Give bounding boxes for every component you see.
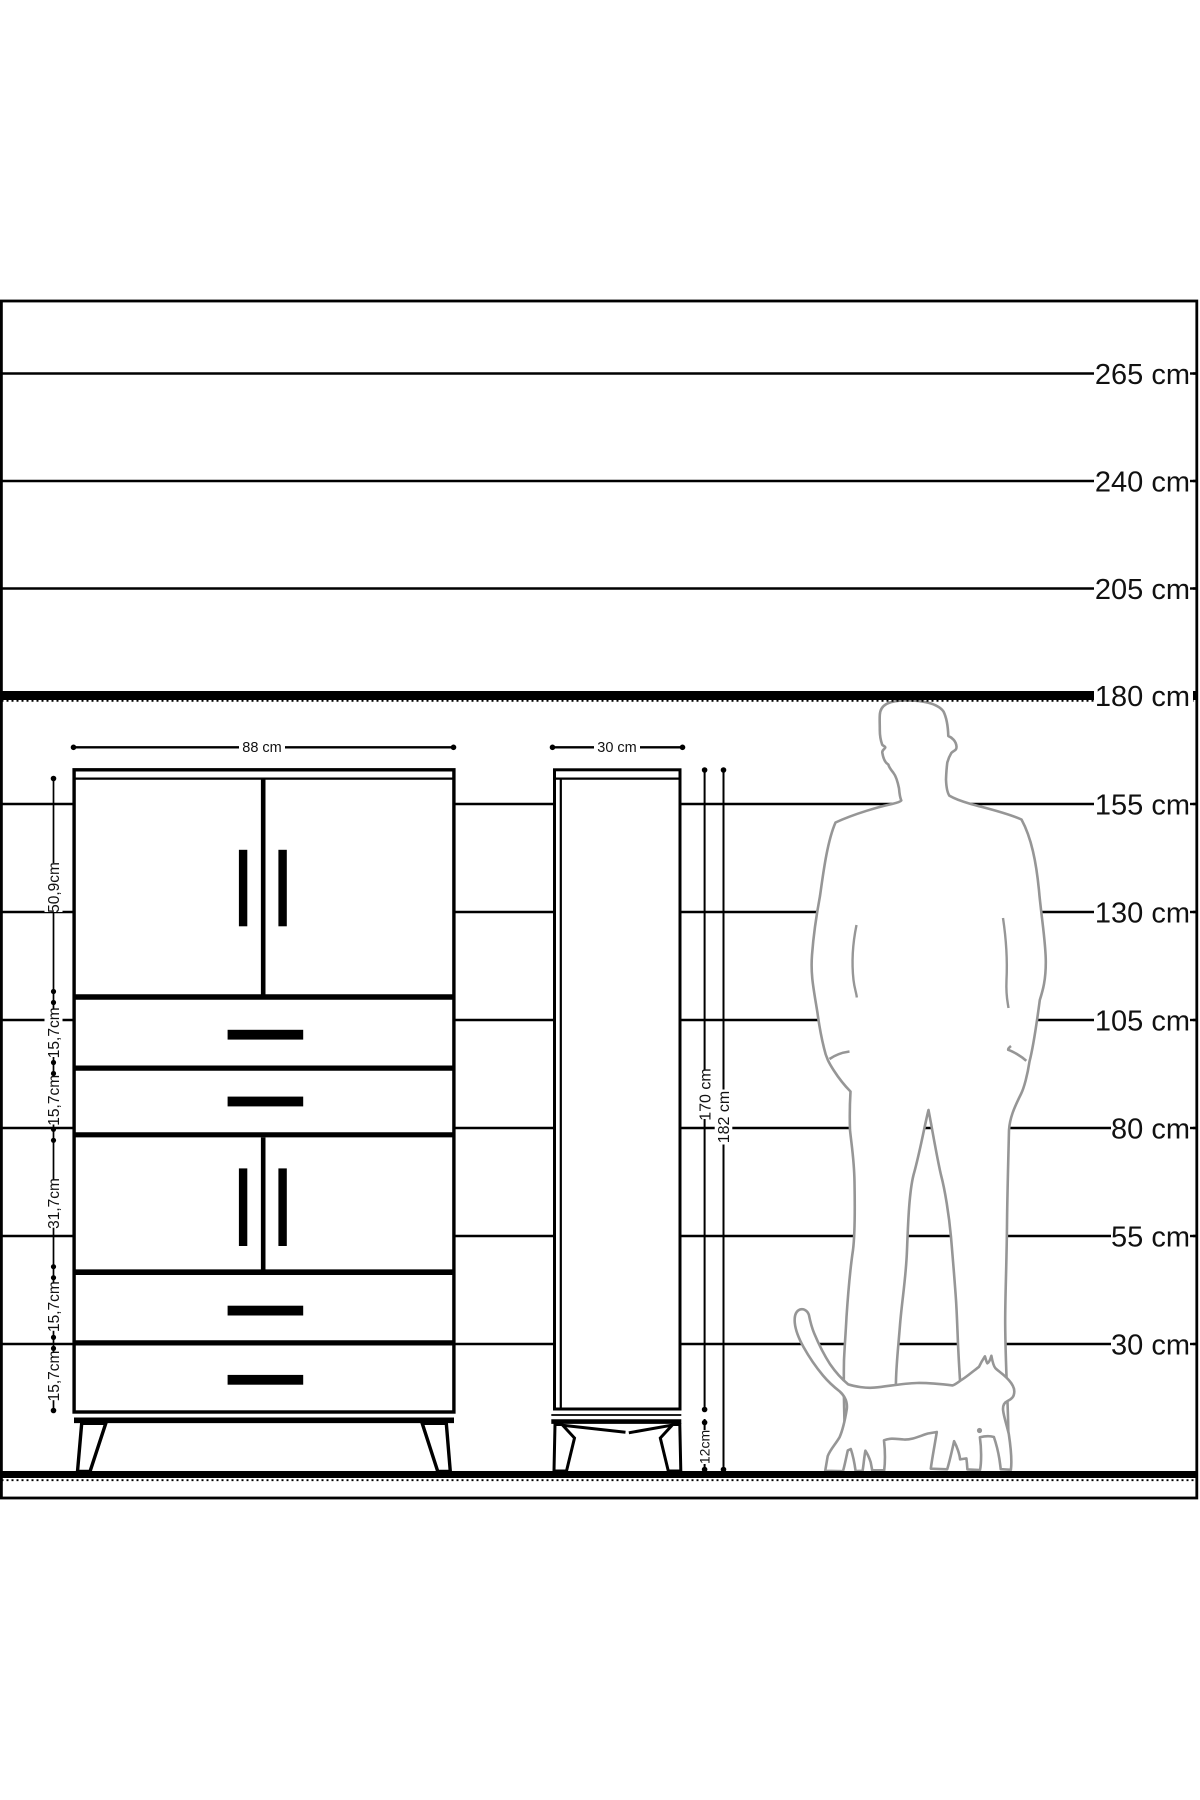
svg-text:105 cm: 105 cm	[1095, 1006, 1190, 1038]
svg-text:240 cm: 240 cm	[1095, 467, 1190, 499]
svg-text:15,7cm: 15,7cm	[46, 1075, 63, 1126]
svg-text:88 cm: 88 cm	[242, 740, 282, 756]
svg-text:265 cm: 265 cm	[1095, 359, 1190, 391]
svg-text:15,7cm: 15,7cm	[46, 1281, 63, 1332]
svg-text:12cm: 12cm	[697, 1430, 713, 1464]
svg-text:55 cm: 55 cm	[1111, 1222, 1190, 1254]
svg-text:155 cm: 155 cm	[1095, 790, 1190, 822]
svg-text:15,7cm: 15,7cm	[46, 1007, 63, 1058]
svg-text:180 cm: 180 cm	[1095, 681, 1190, 713]
svg-text:30 cm: 30 cm	[597, 740, 637, 756]
svg-text:31,7cm: 31,7cm	[46, 1178, 63, 1229]
svg-text:30 cm: 30 cm	[1111, 1330, 1190, 1362]
svg-text:205 cm: 205 cm	[1095, 574, 1190, 606]
svg-text:80 cm: 80 cm	[1111, 1114, 1190, 1146]
svg-text:182 cm: 182 cm	[716, 1091, 733, 1143]
svg-text:15,7cm: 15,7cm	[46, 1351, 63, 1402]
svg-text:130 cm: 130 cm	[1095, 898, 1190, 930]
svg-text:170 cm: 170 cm	[697, 1068, 714, 1120]
svg-text:50,9cm: 50,9cm	[46, 862, 63, 913]
